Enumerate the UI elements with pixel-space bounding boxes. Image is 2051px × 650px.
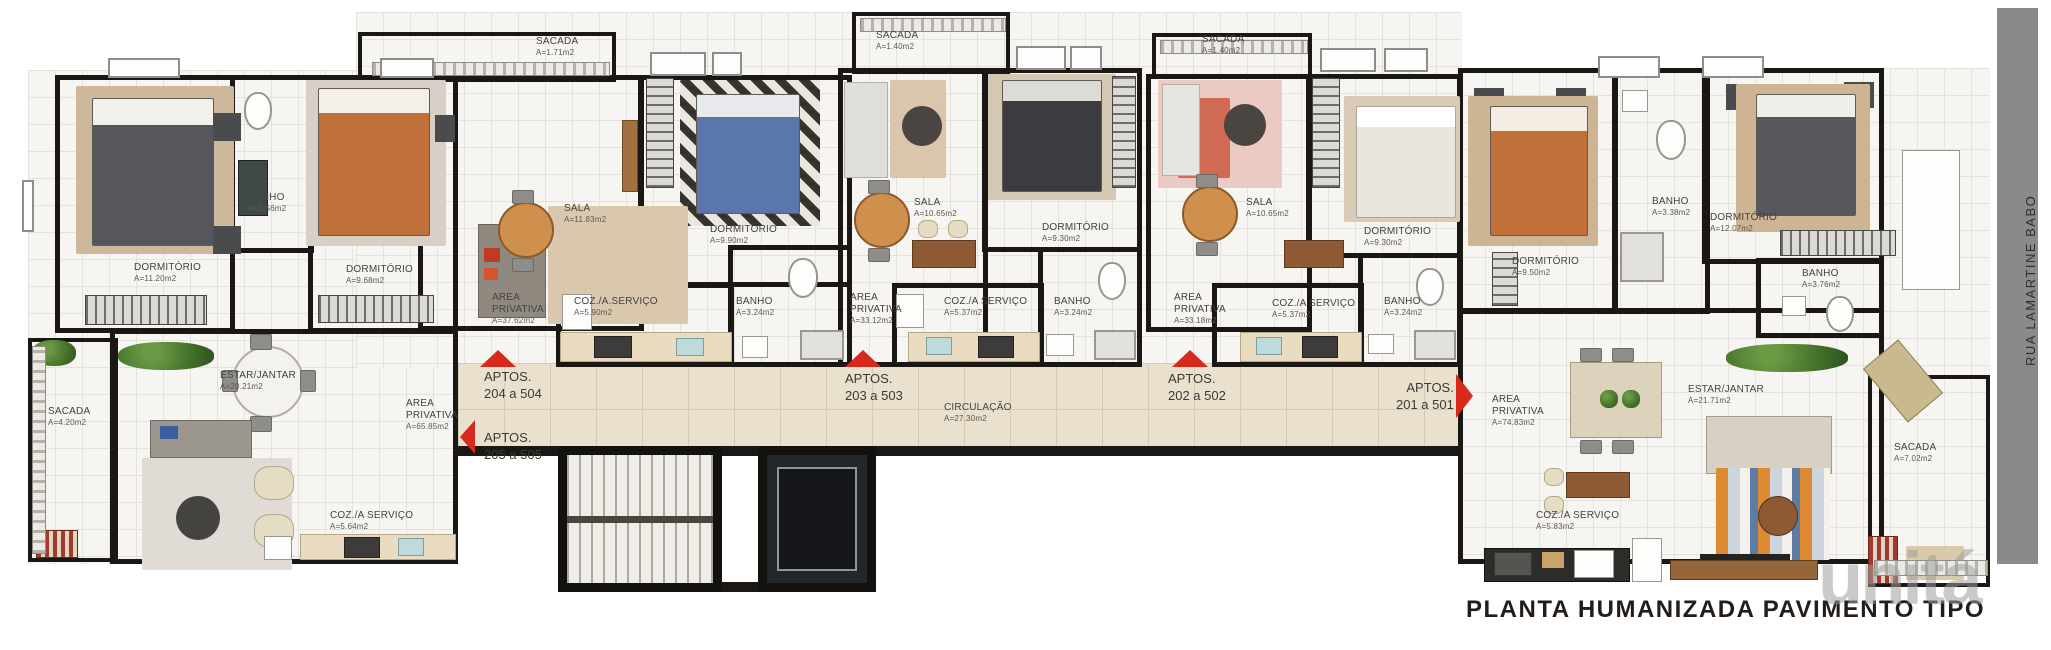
wall-corridor-bottom-right: [872, 446, 1462, 456]
stairs: [558, 446, 722, 592]
toilet: [1656, 120, 1686, 160]
room-label-cozinha: COZ./A SERVIÇO A=5.64m2: [330, 510, 413, 532]
bathroom-sink: [742, 336, 768, 358]
room-label-sacada: SACADA A=1.40m2: [876, 30, 918, 52]
room-label-banho: BANHO A=3.24m2: [1384, 296, 1422, 318]
room-label-banho: BANHO A=3.24m2: [736, 296, 774, 318]
chair: [1196, 242, 1218, 256]
chair: [1580, 440, 1602, 454]
room-label-sala: SALA A=11.83m2: [564, 203, 606, 225]
chair: [1612, 440, 1634, 454]
desk: [1566, 472, 1630, 498]
entrance-label-202-502: APTOS. 202 a 502: [1168, 371, 1226, 405]
entrance-label-201-501: APTOS. 201 a 501: [1396, 380, 1454, 414]
double-bed: [1756, 94, 1856, 216]
room-label-banho: BANHO A=3.38m2: [1652, 196, 1690, 218]
wall-stair-elevator-gap-bottom: [718, 582, 762, 592]
window: [1384, 48, 1428, 72]
sofa: [844, 82, 888, 178]
room-label-estar: ESTAR/JANTAR A=20.21m2: [220, 370, 296, 392]
elevator-cab: [777, 467, 857, 571]
room-label-dormitorio: DORMITÓRIO A=12.07m2: [1710, 212, 1777, 234]
fridge: [1632, 538, 1662, 582]
kitchen-sink: [1256, 337, 1282, 355]
stove: [1302, 336, 1338, 358]
double-bed: [696, 94, 800, 214]
coffee-table: [1224, 104, 1266, 146]
room-label-dormitorio: DORMITÓRIO A=9.50m2: [1512, 256, 1579, 278]
bathroom-sink: [1046, 334, 1074, 356]
bathroom-sink: [1622, 90, 1648, 112]
cabinet: [1902, 150, 1960, 290]
window: [650, 52, 706, 76]
room-label-banho: BANHO A=3.76m2: [1802, 268, 1840, 290]
toilet: [244, 92, 272, 130]
chair: [1544, 468, 1564, 486]
room-label-sacada: SACADA A=4.20m2: [48, 406, 90, 428]
kitchen-table: [1284, 240, 1344, 268]
washer: [264, 536, 292, 560]
room-label-dormitorio: DORMITÓRIO A=9.90m2: [710, 224, 777, 246]
double-bed: [1490, 106, 1588, 236]
sideboard: [1670, 560, 1818, 580]
chair: [250, 416, 272, 432]
wardrobe: [646, 78, 674, 188]
plant: [1622, 390, 1640, 408]
chair: [512, 190, 534, 204]
bathroom-sink: [1782, 296, 1806, 316]
entrance-label-205-505: APTOS. 205 a 505: [484, 430, 542, 464]
shower: [800, 330, 844, 360]
room-label-dormitorio: DORMITÓRIO A=9.68m2: [346, 264, 413, 286]
room-label-dormitorio: DORMITÓRIO A=9.30m2: [1042, 222, 1109, 244]
chair: [1580, 348, 1602, 362]
room-label-sacada: SACADA A=7.02m2: [1894, 442, 1936, 464]
room-label-sacada: SACADA A=1.40m2: [1202, 34, 1244, 56]
wardrobe: [1112, 76, 1136, 188]
entrance-arrow-icon: [845, 350, 881, 367]
balcony-railing: [32, 346, 46, 554]
entrance-arrow-icon: [1456, 374, 1473, 418]
room-label-sala: SALA A=10.65m2: [1246, 197, 1289, 219]
coffee-table: [176, 496, 220, 540]
chair: [512, 258, 534, 272]
room-label-estar: ESTAR/JANTAR A=21.71m2: [1688, 384, 1764, 406]
bathroom-sink: [1368, 334, 1394, 354]
pillow: [160, 426, 178, 439]
room-label-circulacao: CIRCULAÇÃO A=27.30m2: [944, 402, 1012, 424]
watermark-logo: unitá: [1818, 536, 1980, 621]
plant: [118, 342, 214, 370]
room-label-area-privativa: AREA PRIVATIVA A=37.62m2: [492, 292, 564, 326]
window: [1702, 56, 1764, 78]
dining-table: [854, 192, 910, 248]
stove: [978, 336, 1014, 358]
stove: [594, 336, 632, 358]
coffee-table: [1758, 496, 1798, 536]
entrance-label-204-504: APTOS. 204 a 504: [484, 369, 542, 403]
chair: [948, 220, 968, 238]
tv: [1700, 554, 1790, 560]
room-label-dormitorio: DORMITÓRIO A=9.30m2: [1364, 226, 1431, 248]
entrance-label-203-503: APTOS. 203 a 503: [845, 371, 903, 405]
coffee-table: [902, 106, 942, 146]
stove: [344, 537, 380, 558]
street-label: RUA LAMARTINE BABO: [1997, 8, 2038, 564]
window: [108, 58, 180, 78]
kitchen-sink: [676, 338, 704, 356]
cutting-board: [1542, 552, 1564, 568]
nightstand: [213, 113, 241, 141]
room-label-cozinha: COZ./A SERVIÇO A=5.37m2: [944, 296, 1027, 318]
toilet: [1098, 262, 1126, 300]
chair: [918, 220, 938, 238]
sofa: [1162, 84, 1200, 176]
room-label-banho: BANHO A=3.24m2: [1054, 296, 1092, 318]
wall-stair-elevator-gap-top: [718, 446, 762, 456]
nightstand: [435, 115, 455, 142]
entrance-arrow-icon: [1172, 350, 1208, 367]
wardrobe: [318, 295, 434, 323]
chair: [868, 248, 890, 262]
plant: [1726, 344, 1848, 372]
shower: [1414, 330, 1456, 360]
dining-table: [1182, 186, 1238, 242]
dining-table: [498, 202, 554, 258]
room-label-area-privativa: AREA PRIVATIVA A=74.83m2: [1492, 394, 1564, 428]
room-label-area-privativa: AREA PRIVATIVA A=65.85m2: [406, 398, 478, 432]
room-label-area-privativa: AREA PRIVATIVA A=33.18m2: [1174, 292, 1246, 326]
street-bar: RUA LAMARTINE BABO: [1997, 8, 2038, 564]
room-label-area-privativa: AREA PRIVATIVA A=33.12m2: [850, 292, 922, 326]
shower: [1620, 232, 1664, 282]
double-bed: [1002, 80, 1102, 192]
stairs-landing: [567, 516, 713, 523]
elevator: [758, 446, 876, 592]
chair: [300, 370, 316, 392]
kitchen-counter: [560, 332, 732, 362]
room-label-sala: SALA A=10.65m2: [914, 197, 957, 219]
wardrobe: [1312, 78, 1340, 188]
sofa: [1706, 416, 1832, 474]
double-bed: [1356, 106, 1456, 218]
pillow: [484, 248, 500, 262]
room-label-cozinha: COZ./A SERVIÇO A=5.83m2: [1536, 510, 1619, 532]
window: [1598, 56, 1660, 78]
kitchen-sink: [398, 538, 424, 556]
entrance-arrow-icon: [480, 350, 516, 367]
toilet: [1826, 296, 1854, 332]
window: [22, 180, 34, 232]
stove: [1494, 552, 1532, 576]
kitchen-sink: [926, 337, 952, 355]
shower: [1094, 330, 1136, 360]
window: [1016, 46, 1066, 70]
toilet: [788, 258, 818, 298]
chair: [1196, 174, 1218, 188]
armchair: [254, 466, 294, 500]
wardrobe: [1780, 230, 1896, 256]
room-label-dormitorio: DORMITÓRIO A=11.20m2: [134, 262, 201, 284]
room-label-cozinha: COZ./A.SERVIÇO A=5.90m2: [574, 296, 658, 318]
window: [1070, 46, 1102, 70]
chair: [868, 180, 890, 194]
wardrobe: [85, 295, 207, 325]
room-label-cozinha: COZ./A SERVIÇO A=5.37m2: [1272, 298, 1355, 320]
nightstand: [213, 226, 241, 254]
kitchen-table: [912, 240, 976, 268]
kitchen-sink: [1574, 550, 1614, 578]
pillow: [484, 268, 498, 280]
window: [1320, 48, 1376, 72]
tv-rack: [622, 120, 638, 192]
chair: [250, 334, 272, 350]
floor-plan-canvas: SACADA A=4.20m2 DORMITÓRIO A=11.20m2 BAN…: [0, 0, 2051, 650]
double-bed: [318, 88, 430, 236]
room-label-banho: BANHO A=3.56m2: [248, 192, 286, 214]
chair: [1612, 348, 1634, 362]
room-label-sacada: SACADA A=1.71m2: [536, 36, 578, 58]
window: [712, 52, 742, 76]
window: [380, 58, 434, 78]
plant: [1600, 390, 1618, 408]
double-bed: [92, 98, 214, 246]
